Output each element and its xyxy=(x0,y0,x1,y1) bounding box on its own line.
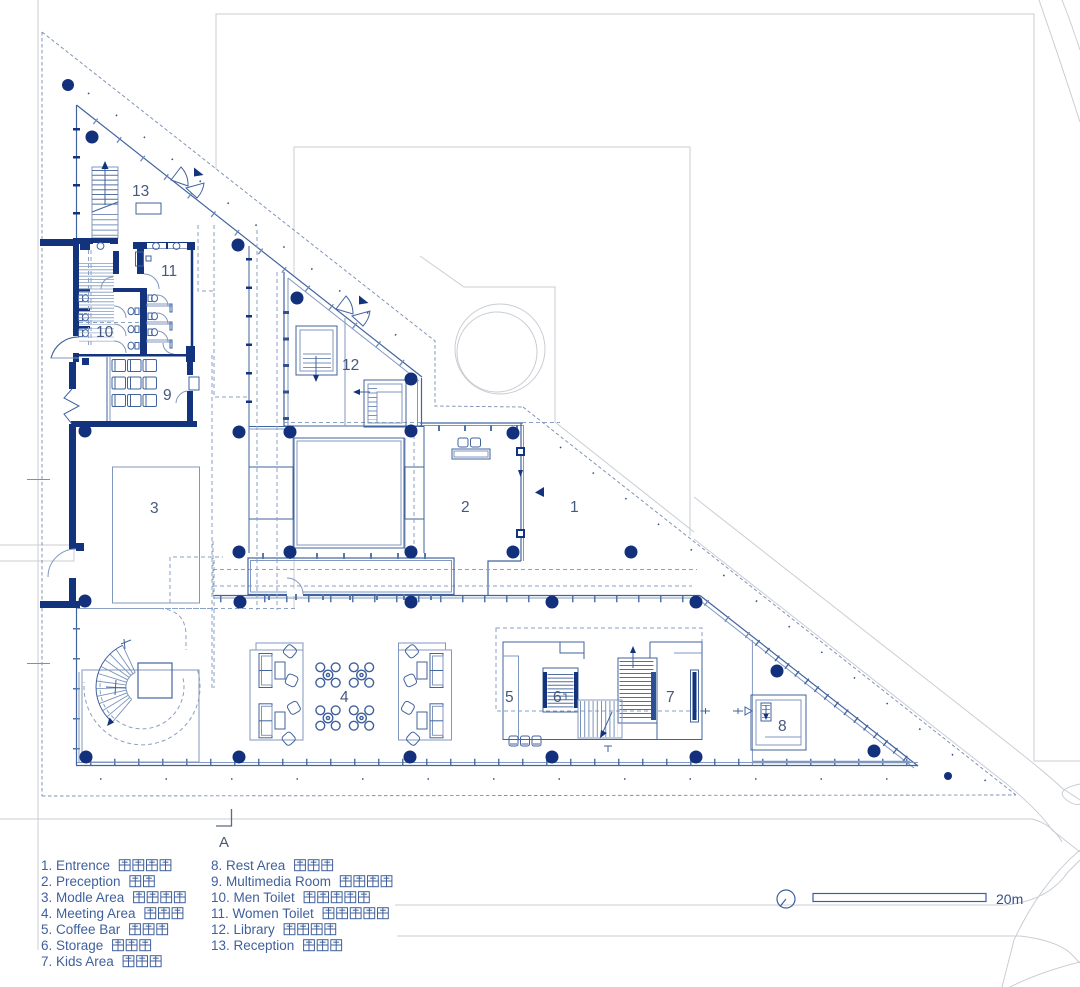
svg-text:5: 5 xyxy=(505,689,514,706)
svg-text:7: 7 xyxy=(666,689,675,706)
svg-text:8. Rest Area: 8. Rest Area xyxy=(211,858,286,873)
svg-text:6. Storage: 6. Storage xyxy=(41,938,103,953)
svg-text:A: A xyxy=(219,834,229,851)
svg-text:10: 10 xyxy=(96,324,114,341)
svg-text:3: 3 xyxy=(150,500,159,517)
svg-text:10. Men Toilet: 10. Men Toilet xyxy=(211,890,295,905)
svg-text:5. Coffee Bar: 5. Coffee Bar xyxy=(41,922,121,937)
svg-text:4. Meeting Area: 4. Meeting Area xyxy=(41,906,136,921)
svg-text:2. Preception: 2. Preception xyxy=(41,874,121,889)
svg-text:13: 13 xyxy=(132,183,149,200)
svg-text:1. Entrence: 1. Entrence xyxy=(41,858,110,873)
svg-text:4: 4 xyxy=(340,689,349,706)
svg-text:11. Women Toilet: 11. Women Toilet xyxy=(211,906,314,921)
svg-text:9: 9 xyxy=(163,387,172,404)
svg-text:1: 1 xyxy=(570,499,579,516)
svg-text:8: 8 xyxy=(778,718,787,735)
svg-text:7. Kids Area: 7. Kids Area xyxy=(41,954,114,969)
svg-text:3. Modle Area: 3. Modle Area xyxy=(41,890,125,905)
svg-text:6: 6 xyxy=(553,689,562,706)
svg-text:13. Reception: 13. Reception xyxy=(211,938,294,953)
svg-text:12: 12 xyxy=(342,357,359,374)
svg-text:11: 11 xyxy=(161,263,177,280)
svg-text:12. Library: 12. Library xyxy=(211,922,275,937)
svg-text:2: 2 xyxy=(461,499,470,516)
svg-text:9. Multimedia Room: 9. Multimedia Room xyxy=(211,874,331,889)
svg-text:20m: 20m xyxy=(996,891,1023,907)
